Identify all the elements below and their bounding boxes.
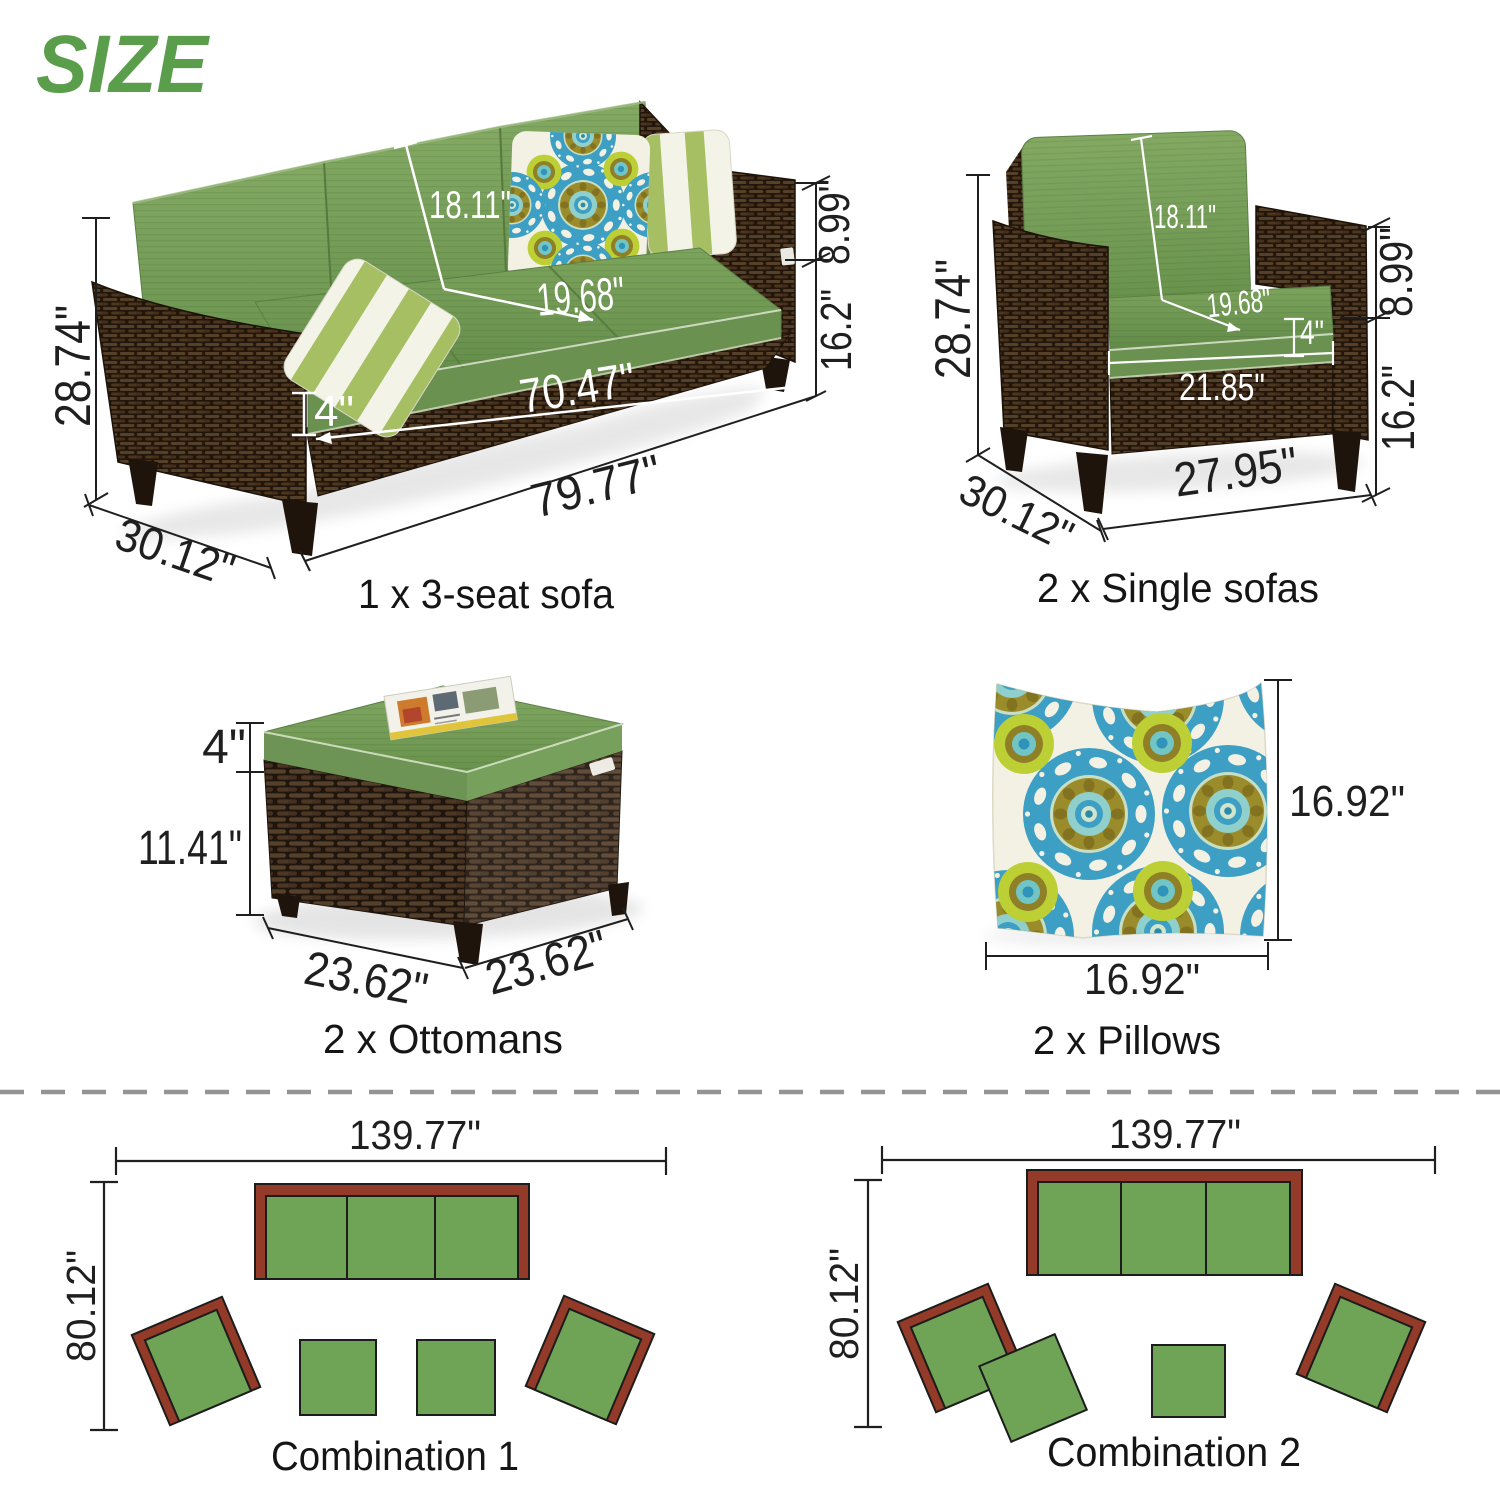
- svg-text:4": 4": [314, 387, 354, 436]
- svg-text:SIZE: SIZE: [36, 19, 210, 110]
- svg-text:18.11": 18.11": [429, 184, 511, 227]
- svg-text:16.92": 16.92": [1084, 955, 1200, 1004]
- svg-text:8.99": 8.99": [810, 179, 859, 265]
- svg-text:2 x Ottomans: 2 x Ottomans: [323, 1016, 563, 1062]
- svg-text:4": 4": [202, 721, 246, 774]
- svg-text:2 x Single sofas: 2 x Single sofas: [1037, 565, 1319, 611]
- svg-text:80.12": 80.12": [821, 1248, 867, 1360]
- svg-text:139.77": 139.77": [349, 1112, 481, 1158]
- svg-text:21.85": 21.85": [1179, 367, 1265, 409]
- svg-text:4": 4": [1300, 314, 1324, 352]
- svg-text:19.68": 19.68": [535, 266, 627, 325]
- svg-text:16.2": 16.2": [1372, 365, 1424, 451]
- svg-text:27.95": 27.95": [1171, 438, 1301, 508]
- svg-text:139.77": 139.77": [1109, 1111, 1241, 1157]
- svg-text:1 x 3-seat sofa: 1 x 3-seat sofa: [358, 571, 614, 617]
- svg-text:16.92": 16.92": [1289, 777, 1405, 826]
- svg-text:18.11": 18.11": [1154, 198, 1216, 235]
- svg-text:Combination 1: Combination 1: [271, 1433, 519, 1479]
- svg-text:16.2": 16.2": [812, 289, 861, 371]
- svg-text:2 x Pillows: 2 x Pillows: [1033, 1019, 1221, 1063]
- svg-text:11.41": 11.41": [138, 822, 242, 875]
- svg-text:8.99": 8.99": [1370, 227, 1422, 317]
- svg-text:28.74": 28.74": [925, 259, 981, 379]
- svg-text:19.68": 19.68": [1205, 281, 1273, 324]
- svg-text:28.74": 28.74": [45, 305, 101, 427]
- svg-text:Combination 2: Combination 2: [1047, 1429, 1301, 1475]
- svg-text:23.62": 23.62": [300, 942, 432, 1018]
- svg-text:80.12": 80.12": [58, 1250, 104, 1362]
